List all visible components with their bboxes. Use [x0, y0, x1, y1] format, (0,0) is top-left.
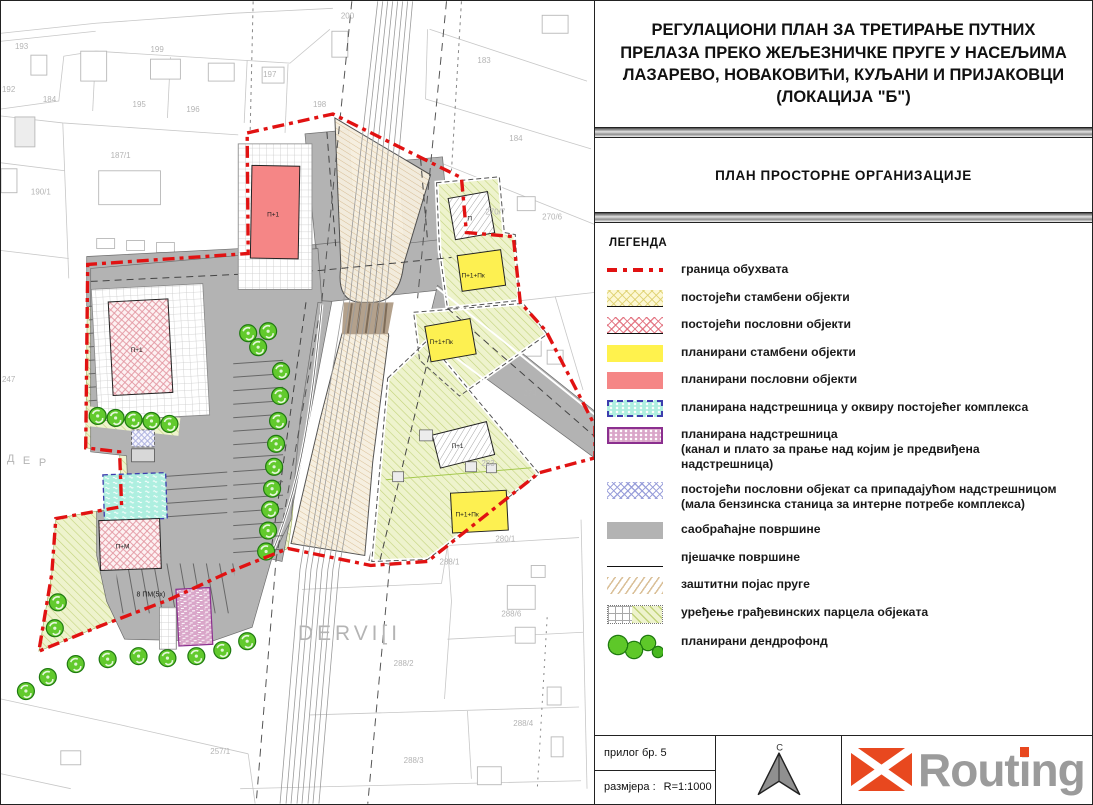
cad-label: Д [7, 453, 15, 465]
legend-item: пјешачке површине [607, 549, 1082, 567]
plan-label: П+М [116, 544, 130, 551]
cad-label: 197 [263, 70, 277, 79]
cad-label: 274 [523, 389, 537, 398]
legend-swatch-planned-canopy-complex [607, 400, 663, 417]
tree [143, 412, 160, 429]
legend-item-label: планирана надстрешница (канал и плато за… [681, 426, 980, 472]
cad-label: 288/4 [513, 719, 534, 728]
separator-bar [595, 212, 1092, 223]
tree [273, 363, 290, 380]
tree [49, 594, 66, 611]
legend-item: планирана надстрешница (канал и плато за… [607, 426, 1082, 472]
legend-item-label: граница обухвата [681, 261, 788, 277]
logo-text-i: i [1019, 744, 1031, 796]
legend-heading: ЛЕГЕНДА [609, 237, 1082, 249]
north-arrow-cell: С [715, 736, 842, 804]
legend-swatch-traffic [607, 522, 663, 539]
tree [188, 648, 205, 665]
legend-swatch-pedestrian [607, 550, 663, 567]
plan-label: П [467, 216, 472, 223]
legend-swatch-planned-canopy [607, 427, 663, 444]
cad-label: 283 [481, 459, 495, 468]
tree [159, 650, 176, 667]
cad-label: Е [23, 455, 30, 467]
tree [270, 412, 287, 429]
legend-swatch-existing-business [607, 317, 663, 334]
footer: прилог бр. 5 размјера : R=1:1000 С [595, 735, 1092, 804]
footer-attachment-cell: прилог бр. 5 размјера : R=1:1000 [595, 736, 715, 804]
cad-label: 187/1 [111, 151, 132, 160]
tree [272, 388, 289, 405]
logo-text-pre: Rout [918, 744, 1019, 796]
legend-swatch-railway-belt [607, 577, 663, 594]
cad-label: 190/1 [31, 188, 52, 197]
plan-label: П+1 [267, 212, 279, 219]
cad-label: 192 [2, 85, 16, 94]
tree [130, 648, 147, 665]
cad-label: 288/6 [501, 609, 522, 618]
cad-label: 288/3 [404, 756, 425, 765]
cad-label: 288/1 [440, 557, 461, 566]
legend-item-label: постојећи стамбени објекти [681, 289, 850, 305]
fuel-station [132, 449, 155, 462]
legend-swatch-dendrofond [607, 634, 663, 660]
tree [268, 435, 285, 452]
cad-label: 257/1 [210, 747, 231, 756]
legend-item-label: планирани пословни објекти [681, 371, 857, 387]
tree [125, 411, 142, 428]
planned-canopy-complex [103, 473, 167, 521]
legend-swatch-planned-business [607, 372, 663, 389]
cad-label: Р [39, 457, 46, 469]
legend-item-label: постојећи пословни објекат са припадајућ… [681, 481, 1057, 512]
info-panel: РЕГУЛАЦИОНИ ПЛАН ЗА ТРЕТИРАЊЕ ПУТНИХ ПРЕ… [595, 0, 1093, 805]
cad-label: 288/2 [394, 659, 415, 668]
tree [17, 683, 34, 700]
legend-item: планирани стамбени објекти [607, 344, 1082, 362]
plan-label: П+1+Пк [461, 272, 484, 279]
legend-item-label: постојећи пословни објекти [681, 316, 851, 332]
legend-swatch-parcel-arrangement [607, 605, 663, 624]
north-arrow-icon: С [750, 740, 808, 800]
plan-label: П+1+Пк [430, 339, 453, 346]
separator-bar [595, 127, 1092, 138]
logo-cell: Routing [842, 736, 1092, 804]
planned-canopy-wash [176, 588, 213, 647]
plan-label: П+1 [131, 347, 143, 354]
tree [107, 409, 124, 426]
tree [260, 522, 277, 539]
plan-map: 193192184199195196197200198183184270/727… [1, 1, 594, 804]
tree [264, 480, 281, 497]
cad-label: 200 [341, 11, 355, 20]
cad-label: 280/1 [495, 535, 516, 544]
legend-item-label: планирани дендрофонд [681, 633, 828, 649]
tree [266, 458, 283, 475]
legend-item: планирана надстрешница у оквиру постојећ… [607, 399, 1082, 417]
legend-item-label: заштитни појас пруге [681, 576, 810, 592]
cad-label: 199 [150, 45, 164, 54]
legend-item: граница обухвата [607, 261, 1082, 279]
cad-label: 184 [43, 95, 57, 104]
legend-item: постојећи стамбени објекти [607, 289, 1082, 307]
tree [89, 407, 106, 424]
planned-residential-building [457, 250, 505, 292]
scale-row: размјера : R=1:1000 [595, 771, 715, 805]
legend-item: постојећи пословни објекти [607, 316, 1082, 334]
plan-label: 8 ПМ(5x) [137, 591, 166, 598]
tree [39, 669, 56, 686]
cad-label: 198 [313, 100, 327, 109]
cad-label: 270/6 [542, 213, 563, 222]
tree [239, 633, 256, 650]
legend-swatch-boundary [607, 262, 663, 279]
attachment-number: прилог бр. 5 [595, 736, 715, 771]
legend-item: заштитни појас пруге [607, 576, 1082, 594]
svg-text:С: С [776, 742, 783, 752]
legend-item-label: планирани стамбени објекти [681, 344, 856, 360]
cad-label: 270/7 [485, 208, 506, 217]
legend-item-label: пјешачке површине [681, 549, 800, 565]
tree [250, 339, 267, 356]
map-panel: 193192184199195196197200198183184270/727… [0, 0, 595, 805]
tree [260, 323, 277, 340]
fuel-station-canopy [132, 430, 155, 447]
cad-label: 195 [133, 100, 147, 109]
legend-swatch-planned-residential [607, 345, 663, 362]
legend: ЛЕГЕНДА граница обухвата постојећи стамб… [595, 223, 1092, 735]
legend-item: уређење грађевинских парцела објеката [607, 604, 1082, 624]
legend-swatch-existing-business-canopy [607, 482, 663, 499]
cad-label: 183 [477, 56, 491, 65]
scale-label: размјера : [604, 781, 656, 793]
legend-item: постојећи пословни објекат са припадајућ… [607, 481, 1082, 512]
cad-label: 247 [2, 375, 16, 384]
legend-swatch-existing-residential [607, 290, 663, 307]
legend-item-label: уређење грађевинских парцела објеката [681, 604, 928, 620]
page-title: РЕГУЛАЦИОНИ ПЛАН ЗА ТРЕТИРАЊЕ ПУТНИХ ПРЕ… [595, 1, 1092, 127]
logo-text-post: ng [1031, 744, 1085, 796]
tree [67, 656, 84, 673]
legend-item-label: планирана надстрешница у оквиру постојећ… [681, 399, 1028, 415]
plan-label: П+1 [451, 443, 463, 450]
tree [161, 415, 178, 432]
legend-rows: граница обухвата постојећи стамбени обје… [607, 261, 1082, 660]
legend-item: планирани пословни објекти [607, 371, 1082, 389]
plan-sheet: 193192184199195196197200198183184270/727… [0, 0, 1093, 805]
tree [99, 651, 116, 668]
cad-label: 184 [509, 134, 523, 143]
cad-label: DERVI[I [298, 622, 401, 645]
tree [214, 642, 231, 659]
routing-logo: Routing [850, 747, 1085, 793]
tree [46, 620, 63, 637]
legend-item: саобраћајне површине [607, 521, 1082, 539]
routing-logo-icon [850, 747, 914, 793]
routing-logo-text: Routing [918, 747, 1085, 793]
plan-subtitle: ПЛАН ПРОСТОРНЕ ОРГАНИЗАЦИЈЕ [595, 138, 1092, 212]
tree [262, 501, 279, 518]
cad-label: 193 [15, 42, 29, 51]
cad-label: 196 [186, 105, 200, 114]
scale-value: R=1:1000 [664, 781, 712, 793]
legend-item-label: саобраћајне површине [681, 521, 821, 537]
legend-item: планирани дендрофонд [607, 633, 1082, 660]
plan-label: П+1+Пк [455, 512, 478, 519]
existing-business-building-2 [99, 519, 161, 571]
